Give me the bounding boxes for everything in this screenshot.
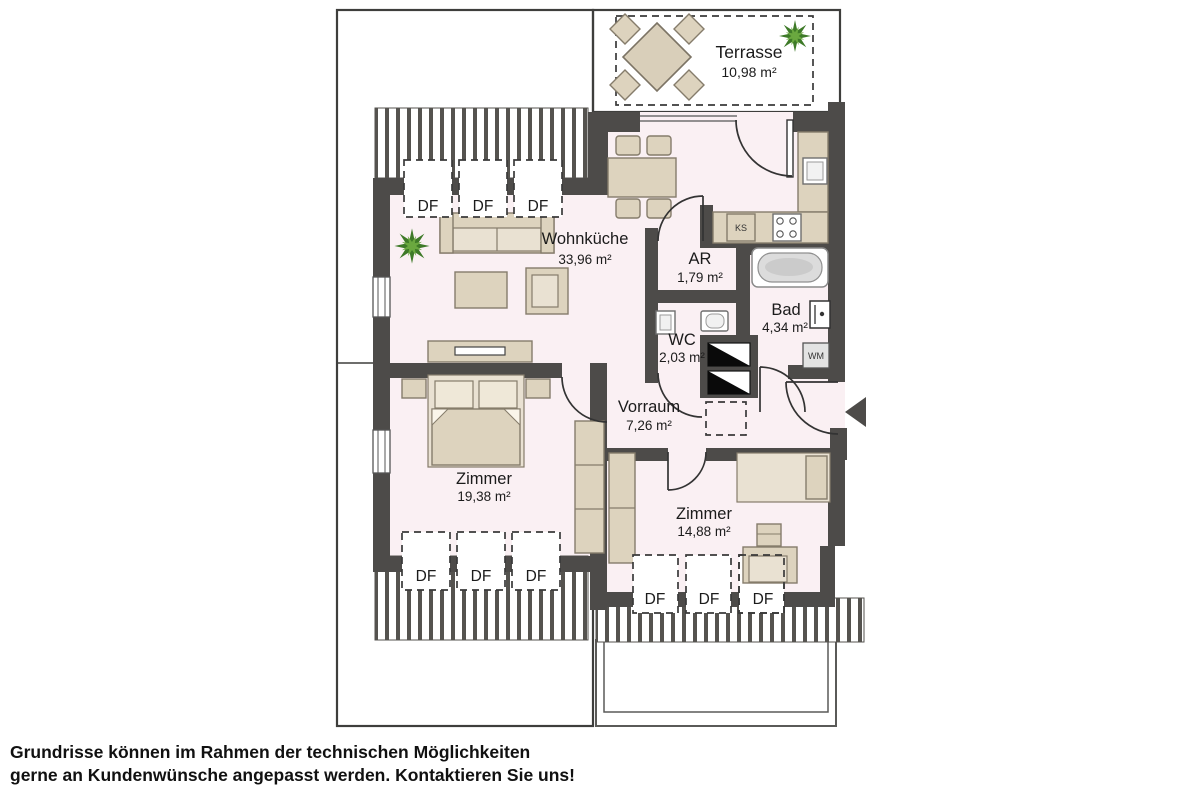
tv-icon (455, 347, 505, 355)
desk-container (757, 524, 781, 546)
df-label: DF (699, 591, 720, 608)
area-wc: 2,03 m² (659, 350, 705, 365)
washer-label: WM (808, 351, 824, 361)
double-bed (428, 375, 524, 467)
kitchen-sink-icon (803, 158, 827, 184)
floorplan-page: Terrasse 10,98 m² Wohnküche 33,96 m² AR … (0, 0, 1200, 800)
stove-icon (773, 214, 801, 241)
df-label: DF (753, 591, 774, 608)
terrace-chair (674, 70, 704, 100)
df-label: DF (418, 198, 439, 215)
footer-note: Grundrisse können im Rahmen der technisc… (10, 742, 575, 785)
wall-segment (593, 112, 640, 132)
toilet-icon (701, 311, 728, 331)
nightstand (402, 379, 426, 398)
tv-board (428, 341, 532, 362)
floorplan-drawing: Terrasse 10,98 m² Wohnküche 33,96 m² AR … (0, 0, 1200, 800)
coffee-table (455, 272, 507, 308)
area-vorraum: 7,26 m² (626, 418, 672, 433)
terrace-chair (610, 70, 640, 100)
dining-chair (647, 199, 671, 218)
wall-segment (645, 228, 658, 383)
dining-chair (647, 136, 671, 155)
pillow (806, 456, 827, 499)
footer-line-1: Grundrisse können im Rahmen der technisc… (10, 742, 530, 762)
terrace-chair (610, 14, 640, 44)
area-zimmer2: 14,88 m² (677, 524, 731, 539)
df-label: DF (645, 591, 666, 608)
label-zimmer1: Zimmer (456, 470, 512, 488)
entrance-arrow-icon (845, 397, 866, 427)
wall-segment (373, 473, 390, 556)
area-terrasse: 10,98 m² (721, 64, 777, 80)
blanket (432, 409, 520, 465)
label-wohnkueche: Wohnküche (542, 230, 629, 248)
window (373, 430, 390, 473)
area-wohnkueche: 33,96 m² (558, 252, 612, 267)
plant-icon (779, 20, 811, 52)
pillow (435, 381, 473, 408)
area-ar: 1,79 m² (677, 270, 723, 285)
area-bad: 4,34 m² (762, 320, 808, 335)
wall-segment (736, 243, 750, 343)
label-terrasse: Terrasse (715, 42, 782, 62)
balcony-below (596, 640, 836, 726)
dining-chair (616, 136, 640, 155)
sofa (440, 213, 554, 253)
df-label: DF (471, 568, 492, 585)
terrace-chair (674, 14, 704, 44)
label-wc: WC (668, 331, 696, 349)
dining-table (608, 158, 676, 197)
wall-segment (645, 290, 750, 303)
wall-segment (793, 112, 828, 132)
wall-segment (373, 195, 390, 277)
plant-icon (394, 228, 429, 263)
single-bed (737, 453, 830, 502)
wall-segment (828, 102, 845, 382)
window (373, 277, 390, 317)
nightstand (526, 379, 550, 398)
dining-chair (616, 199, 640, 218)
footer-line-2: gerne an Kundenwünsche angepasst werden.… (10, 765, 575, 785)
df-label: DF (416, 568, 437, 585)
wardrobe (609, 453, 635, 563)
wall-segment (820, 546, 835, 600)
terrace-dining-set (610, 14, 704, 100)
armchair (526, 268, 568, 314)
label-vorraum: Vorraum (618, 398, 680, 416)
label-ar: AR (689, 250, 712, 268)
desk-chair (749, 556, 787, 582)
df-label: DF (526, 568, 547, 585)
bathtub-icon (752, 248, 828, 287)
fridge-label: KS (735, 223, 747, 233)
bathroom-window-icon (810, 301, 830, 328)
pillow (479, 381, 517, 408)
wall-segment (700, 205, 713, 248)
df-label: DF (473, 198, 494, 215)
df-label: DF (528, 198, 549, 215)
wardrobe (575, 421, 604, 553)
area-zimmer1: 19,38 m² (457, 489, 511, 504)
label-bad: Bad (771, 301, 800, 319)
label-zimmer2: Zimmer (676, 505, 732, 523)
